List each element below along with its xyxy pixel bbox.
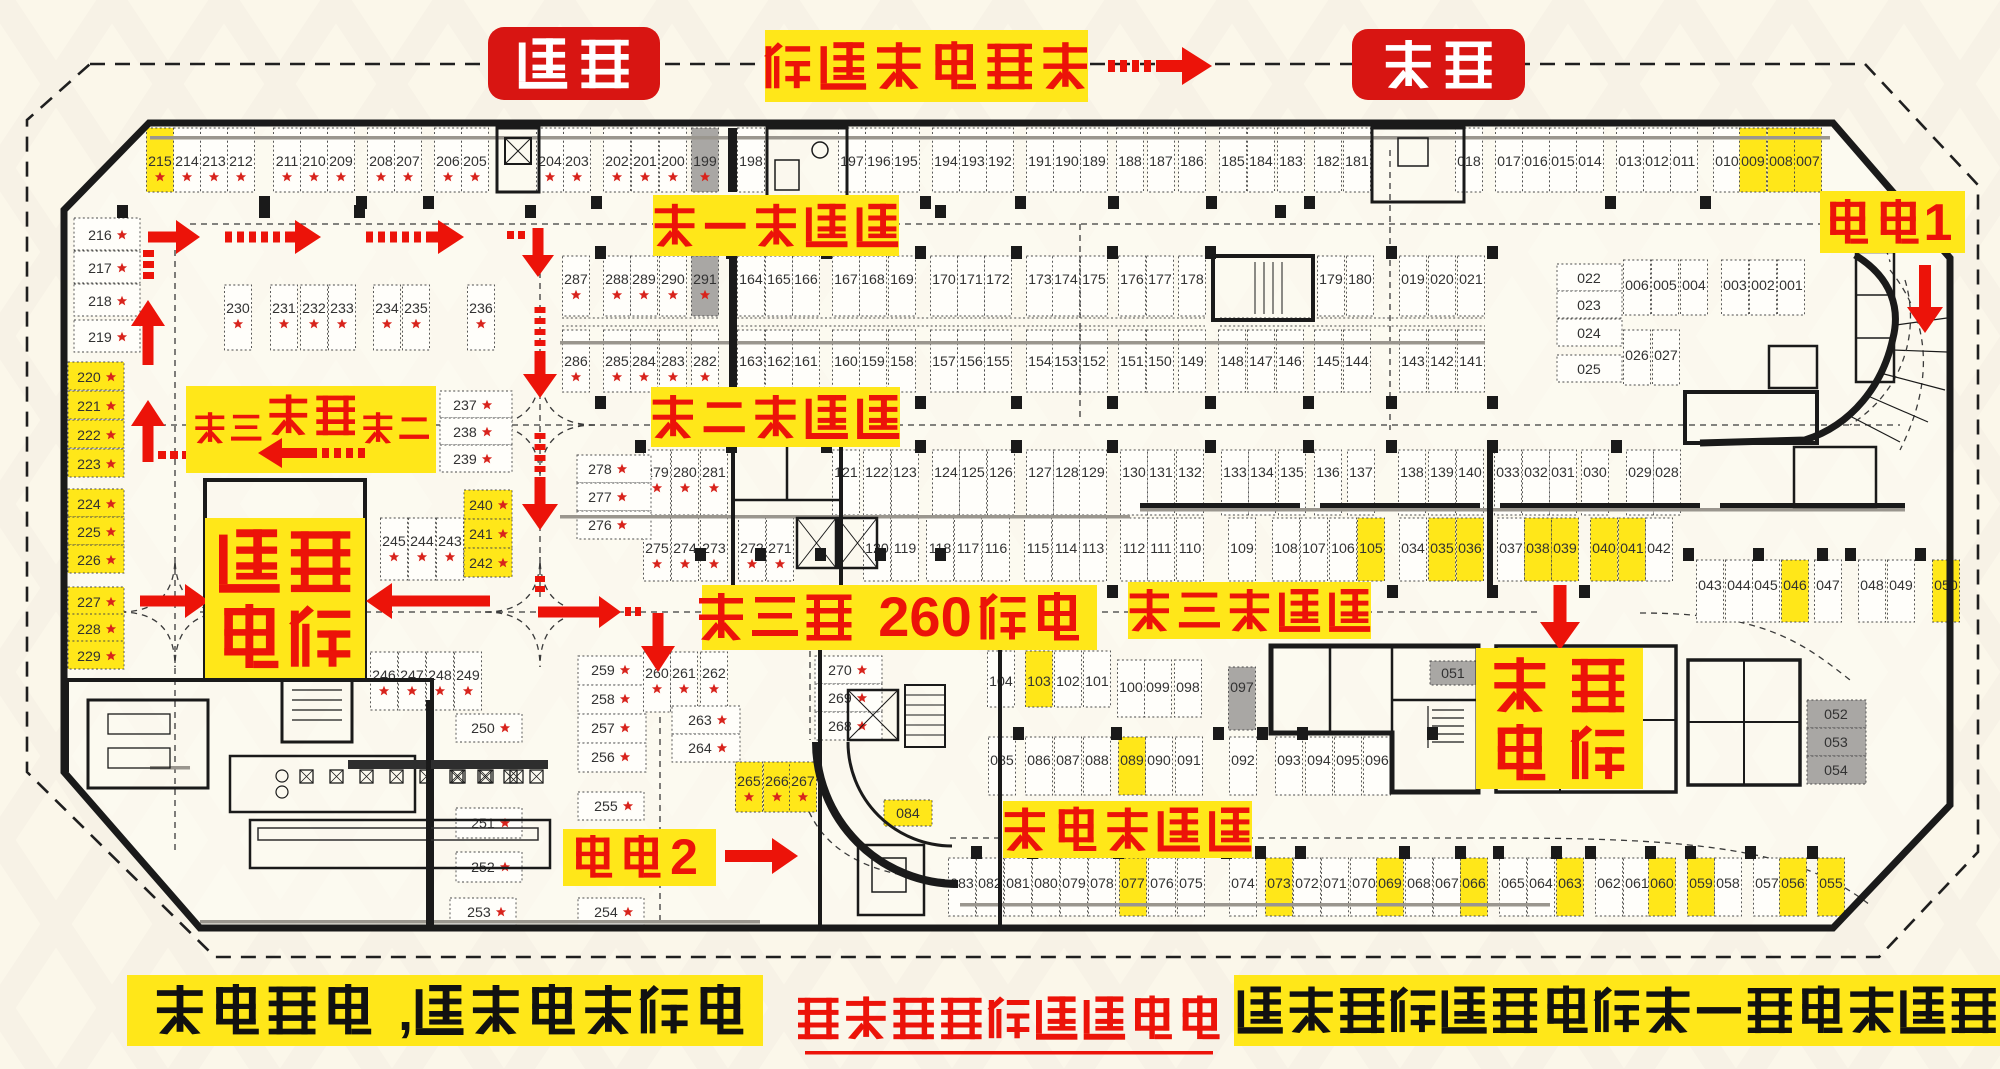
svg-text:037: 037 [1499, 541, 1523, 557]
svg-text:229: 229 [77, 649, 101, 665]
svg-text:164: 164 [739, 272, 763, 288]
svg-text:195: 195 [894, 154, 918, 170]
svg-text:053: 053 [1824, 735, 1848, 751]
svg-text:163: 163 [739, 354, 763, 370]
svg-text:145: 145 [1316, 354, 1340, 370]
svg-text:228: 228 [77, 622, 101, 638]
svg-text:034: 034 [1401, 541, 1425, 557]
svg-text:177: 177 [1148, 272, 1172, 288]
svg-text:190: 190 [1055, 154, 1079, 170]
svg-text:239: 239 [453, 452, 477, 468]
svg-text:144: 144 [1345, 354, 1369, 370]
svg-text:141: 141 [1459, 354, 1483, 370]
svg-text:185: 185 [1221, 154, 1245, 170]
svg-text:233: 233 [330, 301, 354, 317]
svg-text:251: 251 [471, 816, 495, 832]
svg-text:070: 070 [1352, 876, 1376, 892]
svg-text:264: 264 [688, 741, 712, 757]
svg-text:241: 241 [469, 527, 493, 543]
svg-text:194: 194 [934, 154, 958, 170]
svg-text:182: 182 [1316, 154, 1340, 170]
svg-text:2: 2 [670, 829, 698, 885]
svg-text:021: 021 [1459, 272, 1483, 288]
svg-text:266: 266 [765, 774, 789, 790]
svg-text:203: 203 [565, 154, 589, 170]
svg-text:188: 188 [1118, 154, 1142, 170]
svg-text:192: 192 [988, 154, 1012, 170]
svg-text:112: 112 [1123, 541, 1146, 557]
svg-text:005: 005 [1653, 278, 1677, 294]
svg-text:236: 236 [469, 301, 493, 317]
svg-text:280: 280 [673, 465, 697, 481]
svg-text:218: 218 [88, 294, 112, 310]
svg-text:097: 097 [1230, 680, 1254, 696]
svg-text:002: 002 [1751, 278, 1775, 294]
svg-text:189: 189 [1082, 154, 1106, 170]
svg-text:234: 234 [375, 301, 399, 317]
svg-text:150: 150 [1148, 354, 1172, 370]
svg-text:133: 133 [1223, 465, 1247, 481]
svg-text:065: 065 [1501, 876, 1525, 892]
svg-text:098: 098 [1176, 680, 1200, 696]
svg-text:255: 255 [594, 799, 618, 815]
svg-text:220: 220 [77, 370, 101, 386]
svg-text:249: 249 [456, 668, 480, 684]
svg-text:069: 069 [1378, 876, 1402, 892]
svg-text:009: 009 [1741, 154, 1765, 170]
svg-text:161: 161 [794, 354, 818, 370]
svg-text:223: 223 [77, 457, 101, 473]
svg-text:095: 095 [1336, 753, 1360, 769]
svg-text:029: 029 [1628, 465, 1652, 481]
svg-text:172: 172 [986, 272, 1010, 288]
svg-text:257: 257 [591, 721, 615, 737]
svg-text:191: 191 [1028, 154, 1052, 170]
svg-text:103: 103 [1027, 674, 1051, 690]
svg-text:289: 289 [632, 272, 656, 288]
svg-text:288: 288 [605, 272, 629, 288]
svg-text:275: 275 [645, 541, 669, 557]
svg-text:155: 155 [986, 354, 1010, 370]
svg-text:102: 102 [1056, 674, 1080, 690]
svg-text:025: 025 [1577, 362, 1601, 378]
svg-text:169: 169 [890, 272, 914, 288]
svg-text:115: 115 [1027, 541, 1050, 557]
svg-text:012: 012 [1645, 154, 1669, 170]
svg-text:179: 179 [1319, 272, 1343, 288]
svg-text:056: 056 [1781, 876, 1805, 892]
svg-text:165: 165 [767, 272, 791, 288]
svg-text:221: 221 [77, 399, 101, 415]
svg-text:076: 076 [1150, 876, 1174, 892]
svg-text:232: 232 [302, 301, 326, 317]
svg-text:077: 077 [1121, 876, 1145, 892]
svg-text:106: 106 [1331, 541, 1355, 557]
svg-text:126: 126 [989, 465, 1013, 481]
svg-text:181: 181 [1345, 154, 1369, 170]
svg-text:222: 222 [77, 428, 101, 444]
svg-text:049: 049 [1889, 578, 1913, 594]
svg-text:129: 129 [1081, 465, 1105, 481]
svg-text:135: 135 [1280, 465, 1304, 481]
svg-text:028: 028 [1655, 465, 1679, 481]
svg-text:059: 059 [1689, 876, 1713, 892]
svg-text:170: 170 [932, 272, 956, 288]
svg-text:230: 230 [226, 301, 250, 317]
svg-text:032: 032 [1524, 465, 1548, 481]
svg-text:084: 084 [896, 806, 920, 822]
svg-text:139: 139 [1430, 465, 1454, 481]
svg-text:160: 160 [834, 354, 858, 370]
svg-text:154: 154 [1028, 354, 1052, 370]
svg-text:022: 022 [1577, 271, 1601, 287]
svg-text:068: 068 [1407, 876, 1431, 892]
svg-text:114: 114 [1055, 541, 1078, 557]
svg-text:146: 146 [1278, 354, 1302, 370]
svg-text:060: 060 [1650, 876, 1674, 892]
svg-text:278: 278 [588, 462, 612, 478]
svg-text:262: 262 [702, 666, 726, 682]
svg-text:008: 008 [1769, 154, 1793, 170]
svg-text:108: 108 [1274, 541, 1298, 557]
svg-text:033: 033 [1496, 465, 1520, 481]
svg-text:180: 180 [1348, 272, 1372, 288]
svg-text:057: 057 [1755, 876, 1779, 892]
svg-text:010: 010 [1715, 154, 1739, 170]
svg-text:117: 117 [957, 541, 980, 557]
svg-text:254: 254 [594, 905, 618, 921]
svg-text:227: 227 [77, 595, 101, 611]
svg-text:041: 041 [1620, 541, 1644, 557]
svg-text:110: 110 [1179, 541, 1202, 557]
svg-text:140: 140 [1458, 465, 1482, 481]
svg-text:200: 200 [661, 154, 685, 170]
svg-text:274: 274 [673, 541, 697, 557]
svg-text:064: 064 [1529, 876, 1553, 892]
svg-text:290: 290 [661, 272, 685, 288]
svg-text:134: 134 [1250, 465, 1274, 481]
svg-text:136: 136 [1316, 465, 1340, 481]
svg-text:176: 176 [1120, 272, 1144, 288]
svg-text:105: 105 [1359, 541, 1383, 557]
svg-text:018: 018 [1457, 154, 1481, 170]
svg-text:073: 073 [1267, 876, 1291, 892]
svg-text:157: 157 [932, 354, 956, 370]
svg-text:187: 187 [1149, 154, 1173, 170]
svg-text:175: 175 [1082, 272, 1106, 288]
svg-text:080: 080 [1034, 876, 1058, 892]
svg-text:043: 043 [1698, 578, 1722, 594]
svg-text:124: 124 [934, 465, 958, 481]
svg-text:079: 079 [1062, 876, 1086, 892]
svg-text:085: 085 [990, 753, 1014, 769]
svg-text:224: 224 [77, 497, 101, 513]
svg-text:258: 258 [591, 692, 615, 708]
svg-text:137: 137 [1349, 465, 1373, 481]
svg-text:089: 089 [1120, 753, 1144, 769]
svg-text:013: 013 [1618, 154, 1642, 170]
svg-text:048: 048 [1860, 578, 1884, 594]
svg-text:036: 036 [1458, 541, 1482, 557]
svg-text:168: 168 [861, 272, 885, 288]
svg-text:162: 162 [767, 354, 791, 370]
svg-text:142: 142 [1430, 354, 1454, 370]
svg-text:045: 045 [1754, 578, 1778, 594]
svg-text:042: 042 [1647, 541, 1671, 557]
svg-text:014: 014 [1578, 154, 1602, 170]
svg-text:078: 078 [1090, 876, 1114, 892]
svg-text:063: 063 [1558, 876, 1582, 892]
svg-text:285: 285 [605, 354, 629, 370]
svg-text:125: 125 [961, 465, 985, 481]
svg-text:111: 111 [1150, 541, 1172, 557]
svg-text:202: 202 [605, 154, 629, 170]
svg-text:051: 051 [1441, 666, 1465, 682]
svg-text:,: , [398, 982, 413, 1042]
svg-text:046: 046 [1783, 578, 1807, 594]
svg-text:091: 091 [1177, 753, 1201, 769]
svg-text:093: 093 [1277, 753, 1301, 769]
svg-text:067: 067 [1435, 876, 1459, 892]
svg-text:193: 193 [961, 154, 985, 170]
svg-text:217: 217 [88, 261, 112, 277]
svg-text:096: 096 [1365, 753, 1389, 769]
svg-text:167: 167 [834, 272, 858, 288]
svg-text:243: 243 [438, 534, 462, 550]
svg-text:265: 265 [737, 774, 761, 790]
svg-text:039: 039 [1553, 541, 1577, 557]
svg-text:284: 284 [632, 354, 656, 370]
svg-text:283: 283 [661, 354, 685, 370]
svg-text:031: 031 [1551, 465, 1575, 481]
svg-text:259: 259 [591, 663, 615, 679]
svg-text:250: 250 [471, 721, 495, 737]
svg-text:159: 159 [861, 354, 885, 370]
svg-text:138: 138 [1400, 465, 1424, 481]
svg-text:214: 214 [175, 154, 199, 170]
svg-text:205: 205 [463, 154, 487, 170]
svg-text:282: 282 [693, 354, 717, 370]
svg-text:006: 006 [1625, 278, 1649, 294]
svg-text:196: 196 [867, 154, 891, 170]
svg-text:197: 197 [840, 154, 864, 170]
svg-text:291: 291 [693, 272, 717, 288]
svg-text:156: 156 [959, 354, 983, 370]
svg-text:209: 209 [329, 154, 353, 170]
svg-text:052: 052 [1824, 707, 1848, 723]
svg-text:178: 178 [1180, 272, 1204, 288]
svg-text:122: 122 [865, 465, 889, 481]
svg-text:020: 020 [1430, 272, 1454, 288]
svg-text:092: 092 [1231, 753, 1255, 769]
svg-text:017: 017 [1497, 154, 1521, 170]
svg-text:240: 240 [469, 498, 493, 514]
svg-text:174: 174 [1054, 272, 1078, 288]
svg-text:074: 074 [1231, 876, 1255, 892]
svg-text:061: 061 [1625, 876, 1649, 892]
svg-text:153: 153 [1054, 354, 1078, 370]
svg-text:215: 215 [148, 154, 172, 170]
svg-text:286: 286 [564, 354, 588, 370]
svg-text:016: 016 [1524, 154, 1548, 170]
svg-text:173: 173 [1028, 272, 1052, 288]
svg-text:235: 235 [404, 301, 428, 317]
svg-text:004: 004 [1682, 278, 1706, 294]
svg-text:271: 271 [768, 541, 792, 557]
svg-text:267: 267 [791, 774, 815, 790]
svg-text:121: 121 [834, 465, 858, 481]
svg-text:281: 281 [702, 465, 726, 481]
svg-text:015: 015 [1551, 154, 1575, 170]
svg-text:263: 263 [688, 713, 712, 729]
svg-text:151: 151 [1120, 354, 1144, 370]
svg-text:047: 047 [1816, 578, 1840, 594]
svg-text:087: 087 [1056, 753, 1080, 769]
svg-text:040: 040 [1592, 541, 1616, 557]
svg-text:100: 100 [1119, 680, 1143, 696]
svg-text:231: 231 [272, 301, 296, 317]
svg-text:119: 119 [894, 541, 917, 557]
svg-text:206: 206 [436, 154, 460, 170]
svg-text:107: 107 [1302, 541, 1326, 557]
svg-text:183: 183 [1279, 154, 1303, 170]
svg-text:148: 148 [1220, 354, 1244, 370]
svg-text:276: 276 [588, 518, 612, 534]
svg-text:204: 204 [538, 154, 562, 170]
svg-text:184: 184 [1249, 154, 1273, 170]
svg-text:038: 038 [1526, 541, 1550, 557]
svg-text:253: 253 [467, 905, 491, 921]
svg-text:132: 132 [1178, 465, 1202, 481]
svg-text:277: 277 [588, 490, 612, 506]
svg-text:149: 149 [1180, 354, 1204, 370]
svg-text:287: 287 [564, 272, 588, 288]
svg-text:072: 072 [1295, 876, 1319, 892]
svg-text:024: 024 [1577, 326, 1601, 342]
svg-text:171: 171 [959, 272, 983, 288]
svg-text:212: 212 [229, 154, 253, 170]
svg-text:054: 054 [1824, 763, 1848, 779]
svg-text:030: 030 [1583, 465, 1607, 481]
svg-text:023: 023 [1577, 298, 1601, 314]
svg-text:242: 242 [469, 556, 493, 572]
svg-text:094: 094 [1307, 753, 1331, 769]
svg-text:198: 198 [739, 154, 763, 170]
svg-text:026: 026 [1625, 348, 1649, 364]
svg-text:270: 270 [828, 663, 852, 679]
svg-text:158: 158 [890, 354, 914, 370]
svg-text:130: 130 [1122, 465, 1146, 481]
svg-text:116: 116 [985, 541, 1008, 557]
svg-text:201: 201 [633, 154, 657, 170]
svg-text:101: 101 [1085, 674, 1109, 690]
svg-text:044: 044 [1727, 578, 1751, 594]
svg-text:113: 113 [1082, 541, 1105, 557]
svg-text:071: 071 [1323, 876, 1347, 892]
svg-text:237: 237 [453, 398, 477, 414]
svg-text:199: 199 [693, 154, 717, 170]
svg-text:1: 1 [1924, 194, 1953, 252]
svg-text:225: 225 [77, 525, 101, 541]
svg-text:261: 261 [672, 666, 696, 682]
svg-text:127: 127 [1028, 465, 1052, 481]
svg-text:066: 066 [1462, 876, 1486, 892]
svg-text:055: 055 [1819, 876, 1843, 892]
svg-text:062: 062 [1597, 876, 1621, 892]
svg-text:152: 152 [1082, 354, 1106, 370]
svg-text:238: 238 [453, 425, 477, 441]
svg-text:099: 099 [1146, 680, 1170, 696]
svg-text:035: 035 [1430, 541, 1454, 557]
svg-text:166: 166 [794, 272, 818, 288]
svg-text:260: 260 [878, 585, 971, 648]
svg-text:207: 207 [396, 154, 420, 170]
svg-text:075: 075 [1179, 876, 1203, 892]
svg-text:216: 216 [88, 228, 112, 244]
svg-text:147: 147 [1249, 354, 1273, 370]
svg-text:245: 245 [382, 534, 406, 550]
svg-text:109: 109 [1230, 541, 1254, 557]
svg-text:088: 088 [1085, 753, 1109, 769]
svg-text:219: 219 [88, 330, 112, 346]
svg-text:143: 143 [1401, 354, 1425, 370]
svg-text:128: 128 [1055, 465, 1079, 481]
svg-text:256: 256 [591, 750, 615, 766]
svg-text:244: 244 [410, 534, 434, 550]
svg-text:211: 211 [276, 154, 299, 170]
svg-text:213: 213 [202, 154, 226, 170]
svg-text:086: 086 [1027, 753, 1051, 769]
svg-text:011: 011 [1673, 154, 1696, 170]
svg-text:186: 186 [1180, 154, 1204, 170]
svg-text:123: 123 [893, 465, 917, 481]
svg-text:050: 050 [1934, 578, 1958, 594]
svg-text:007: 007 [1796, 154, 1820, 170]
svg-text:001: 001 [1779, 278, 1803, 294]
svg-text:208: 208 [369, 154, 393, 170]
svg-text:226: 226 [77, 553, 101, 569]
svg-text:058: 058 [1716, 876, 1740, 892]
svg-text:027: 027 [1654, 348, 1678, 364]
svg-text:003: 003 [1723, 278, 1747, 294]
svg-text:081: 081 [1006, 876, 1030, 892]
svg-text:131: 131 [1149, 465, 1173, 481]
svg-text:019: 019 [1401, 272, 1425, 288]
svg-text:090: 090 [1147, 753, 1171, 769]
svg-text:210: 210 [302, 154, 326, 170]
